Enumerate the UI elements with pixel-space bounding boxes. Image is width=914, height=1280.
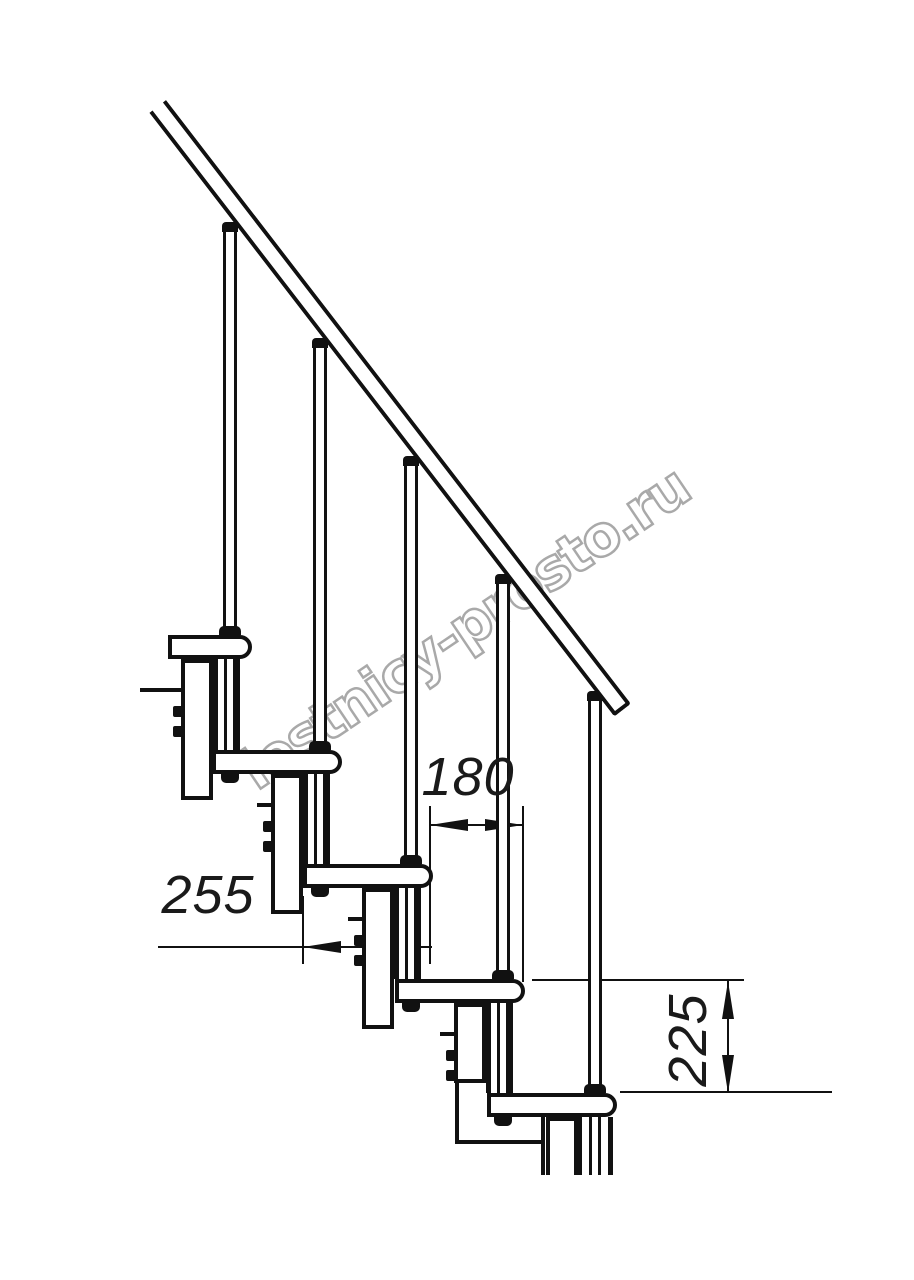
bolt xyxy=(446,1070,457,1081)
baluster xyxy=(223,230,237,635)
threaded-rod xyxy=(224,659,236,750)
dimension-label-step-rise: 225 xyxy=(661,982,715,1098)
support-column xyxy=(362,888,394,1029)
stair-tread xyxy=(487,1093,617,1117)
baluster-base xyxy=(584,1084,606,1093)
extension-line xyxy=(522,806,524,982)
baluster xyxy=(404,464,418,864)
frame-detail xyxy=(455,1083,459,1143)
mount-tab xyxy=(140,688,185,692)
fixing-nut xyxy=(221,774,239,783)
support-column xyxy=(181,659,213,800)
bolt xyxy=(354,935,365,946)
dimension-arrow xyxy=(722,1055,734,1093)
dimension-arrow xyxy=(722,981,734,1019)
baluster xyxy=(588,699,602,1093)
frame-detail xyxy=(541,1117,545,1175)
extension-line xyxy=(532,979,744,981)
stair-tread xyxy=(168,635,252,659)
fixing-nut xyxy=(311,888,329,897)
support-column xyxy=(271,774,303,914)
bolt xyxy=(354,955,365,966)
baluster-base xyxy=(400,855,422,864)
bolt xyxy=(263,821,274,832)
fixing-nut xyxy=(494,1117,512,1126)
bolt xyxy=(173,726,184,737)
threaded-rod xyxy=(497,1003,509,1093)
bolt xyxy=(173,706,184,717)
stair-tread xyxy=(212,750,342,774)
baluster-base xyxy=(309,741,331,750)
threaded-rod xyxy=(405,888,417,979)
fixing-nut xyxy=(402,1003,420,1012)
dimension-label-tread-depth: 255 xyxy=(158,868,258,922)
mount-tab xyxy=(257,803,273,807)
dimension-arrow xyxy=(303,941,341,953)
dimension-arrow xyxy=(430,819,468,831)
support-column xyxy=(454,1003,486,1083)
support-column xyxy=(546,1117,578,1175)
baluster xyxy=(313,346,327,750)
threaded-rod xyxy=(314,774,326,864)
handrail xyxy=(149,100,631,717)
stair-tread xyxy=(395,979,525,1003)
dimension-label-step-run: 180 xyxy=(412,750,524,804)
mount-tab xyxy=(348,917,364,921)
baluster-base xyxy=(492,970,514,979)
bolt xyxy=(446,1050,457,1061)
threaded-rod xyxy=(589,1117,601,1175)
mount-tab xyxy=(440,1032,456,1036)
stair-tread xyxy=(303,864,433,888)
frame-detail xyxy=(455,1140,545,1144)
bolt xyxy=(263,841,274,852)
stair-technical-drawing: lestnicy-prosto.ru 180 255 225 xyxy=(0,0,914,1280)
baluster-base xyxy=(219,626,241,635)
